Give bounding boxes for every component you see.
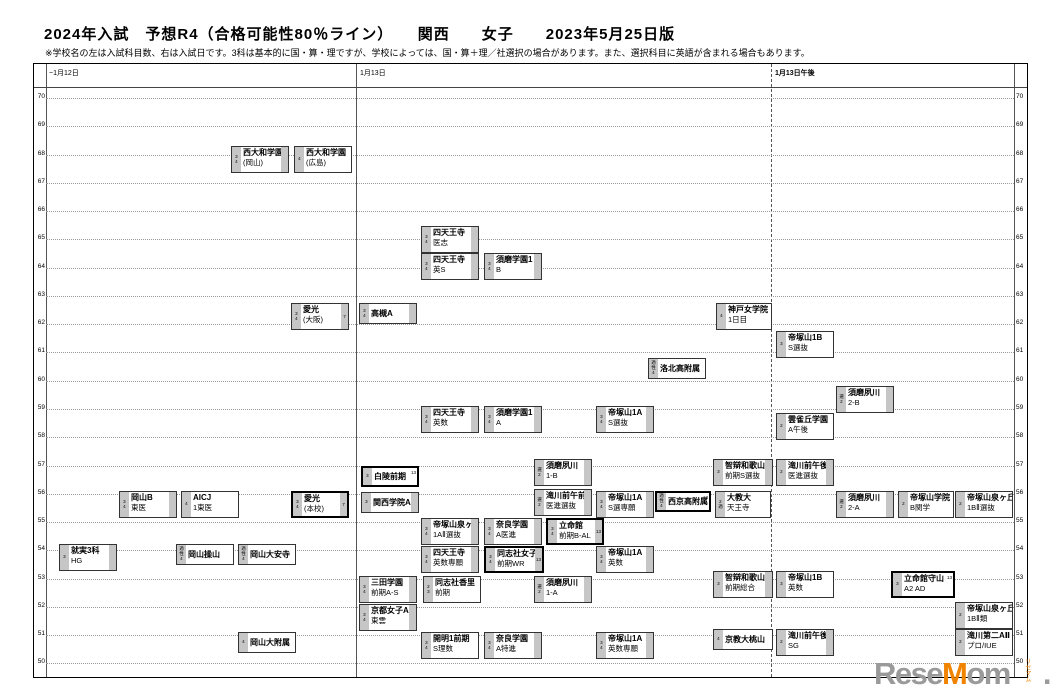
school-text: 白陵前期13 [372,468,417,485]
logo-katakana: リセマム [1011,658,1043,688]
column-header-jan13pm: 1月13日午後 [775,69,815,78]
school-text: 西大和学園(岡山) [241,147,281,172]
exam-day-band [886,387,893,412]
deviation-gridline [46,663,1014,664]
school-course: 1-A [546,588,584,597]
school-name: 四天王寺 [433,548,471,558]
school-box: 3智辯和歌山前期S選抜 [713,459,773,486]
column-header-jan13: 1月13日 [360,69,386,78]
school-text: 関西学院A [371,493,411,512]
school-text: 滝川第二AⅡプロ/IUE [965,630,1012,655]
axis-label-right: 62 [1016,319,1026,327]
school-text: 岡山B東医 [129,492,169,517]
axis-label-left: 56 [35,489,45,497]
school-box: 34開明1前期S理数 [421,632,479,659]
subjects-label: 34 [422,227,431,252]
deviation-gridline [46,239,1014,240]
school-text: AICJ1東医 [191,492,238,517]
subjects-label: 選2 [535,490,544,515]
school-box: 2滝川前午後医進選抜 [776,459,834,486]
column-divider-1 [356,64,357,677]
school-name: 智辯和歌山 [725,461,765,471]
resemom-logo: ReseMomリセマム. [874,658,1050,690]
axis-label-left: 68 [35,150,45,158]
school-name: 帝塚山1A [608,634,646,644]
deviation-gridline [46,437,1014,438]
school-text: 奈良学園A特進 [494,633,534,658]
school-box: 3就実3科HG [59,544,117,571]
school-text: 須磨夙川1-A [544,577,584,602]
school-text: 四天王寺英数 [431,407,471,432]
exam-day-band [534,633,541,658]
axis-label-right: 51 [1016,630,1026,638]
exam-day-band [646,407,653,432]
axis-label-right: 58 [1016,432,1026,440]
school-name: 帝塚山1A [608,408,646,418]
axis-label-left: 64 [35,263,45,271]
subjects-label: 3 [777,332,786,357]
school-text: 西京高附属13 [666,493,709,510]
subjects-label: 2 [956,603,965,628]
school-text: 帝塚山学院B関学 [908,492,953,517]
exam-day-band [471,407,478,432]
subjects-label: 34 [422,254,431,279]
school-name: 帝塚山1B [788,573,833,583]
axis-label-right: 70 [1016,93,1026,101]
exam-day-band [646,547,653,572]
school-course: 1BⅡ選抜 [967,503,1012,512]
subjects-label: 34 [485,633,494,658]
school-name: 関西学院A [373,498,411,508]
school-name: 智辯和歌山 [725,573,765,583]
school-box: 34帝塚山1A英数専願 [596,632,654,659]
school-box: 34帝塚山1A英数 [596,546,654,573]
school-box: 2帝塚山泉ヶ丘1BⅡ選抜 [955,491,1013,518]
deviation-gridline [46,98,1014,99]
subjects-label: 34 [422,407,431,432]
school-text: 帝塚山1BS選抜 [786,332,833,357]
school-course: 英数専願 [608,644,646,653]
school-name: 同志社香里 [435,578,480,588]
exam-day-band [646,633,653,658]
school-course: A午後 [788,425,833,434]
exam-day-band [584,490,591,515]
axis-label-left: 69 [35,121,45,129]
school-box: 34四天王寺医志 [421,226,479,253]
school-text: 四天王寺英S [431,254,471,279]
school-box: 34三田学園前期A-S [359,576,417,603]
school-text: 須磨夙川2-A [846,492,886,517]
school-text: 帝塚山1AS選抜 [606,407,646,432]
school-text: 智辯和歌山前期総合 [723,572,765,597]
school-box: 3関西学院A [361,492,419,513]
school-text: 同志社女子前期WR [495,548,535,571]
exam-day-band [409,577,416,602]
school-course: 英S [433,265,471,274]
axis-label-right: 65 [1016,234,1026,242]
school-box: 適性4洛北高附属 [648,358,706,379]
column-header-jan12: ~1月12日 [49,69,79,78]
school-course: 英数専願 [433,558,471,567]
school-text: 岡山大安寺 [248,545,295,564]
school-course: 英数 [608,558,646,567]
school-box: 34奈良学園A特進 [484,632,542,659]
axis-label-left: 53 [35,574,45,582]
subjects-label: 34 [120,492,129,517]
axis-label-left: 62 [35,319,45,327]
subjects-label: 3 [777,572,786,597]
school-box: 適性4岡山操山 [176,544,234,565]
axis-label-right: 52 [1016,602,1026,610]
school-text: 愛光(本校) [302,493,340,516]
subjects-label: 23 [424,577,433,602]
exam-day-band [584,577,591,602]
axis-label-left: 51 [35,630,45,638]
exam-day-band [646,492,653,517]
school-name: 開明1前期 [433,634,478,644]
exam-day-band: 7 [341,304,348,329]
school-name: 白陵前期 [374,472,406,482]
subjects-label: 34 [292,304,301,329]
school-course: 前期 [435,588,480,597]
school-name: 須磨夙川 [848,493,886,503]
school-box: 2滝川前午後SG [776,629,834,656]
axis-label-right: 60 [1016,376,1026,384]
subjects-label: 34 [485,519,494,544]
school-name: 奈良学園 [496,520,534,530]
school-course: 前期B-AL [559,531,595,540]
axis-label-left: 70 [35,93,45,101]
exam-day-band [409,605,416,630]
exam-day-band: 13 [595,520,602,543]
school-name: 帝塚山1A [608,548,646,558]
school-box: 34岡山B東医 [119,491,177,518]
school-box: 34立命館前期B-AL13 [546,518,604,545]
subjects-label: 34 [360,577,369,602]
axis-label-left: 63 [35,291,45,299]
axis-label-left: 58 [35,432,45,440]
school-course: 前期A-S [371,588,409,597]
school-name: 同志社女子 [497,549,535,559]
school-name: 岡山大附属 [250,638,290,648]
school-name: 立命館 [559,521,595,531]
school-name: 須磨夙川 [848,388,886,398]
school-box: 3帝塚山1BS選抜 [776,331,834,358]
school-course: 天王寺 [727,503,770,512]
subjects-label: 3 [714,460,723,485]
axis-label-left: 57 [35,461,45,469]
school-box: 34須磨学園1A [484,406,542,433]
school-name: 滝川前午前 [546,491,584,501]
school-box: 3立命館守山A2 AD13 [891,571,955,598]
logo-accent-letter: M [942,656,966,691]
school-course: A2 AD [904,584,953,593]
school-text: 立命館守山A2 AD13 [902,573,953,596]
exam-day-band [471,519,478,544]
school-name: 奈良学園 [496,634,534,644]
axis-label-right: 53 [1016,574,1026,582]
school-box: 適性4岡山大安寺 [238,544,296,565]
school-box: 34帝塚山1AS選専願 [596,491,654,518]
subjects-label: 34 [422,519,431,544]
subjects-label: 4 [295,147,304,172]
exam-day-band [409,304,416,323]
subjects-label: 選2 [535,460,544,485]
logo-text-2: om [966,656,1010,691]
school-course: 1AⅡ選抜 [433,530,471,539]
school-name: 帝塚山学院 [910,493,953,503]
subjects-label: 2 [899,492,908,517]
subjects-label: 34 [597,547,606,572]
school-name: 岡山B [131,493,169,503]
school-text: 洛北高附属 [658,359,705,378]
school-text: 京教大桃山 [723,630,772,649]
deviation-gridline [46,607,1014,608]
school-box: 4西大和学園(広島) [294,146,352,173]
subjects-label: 選2 [535,577,544,602]
school-box: 3帝塚山1B英数 [776,571,834,598]
school-text: 帝塚山泉ヶ丘1AⅡ選抜 [431,519,471,544]
school-box: 34高槻A [359,303,417,324]
school-course: SG [788,641,826,650]
exam-day-band: 13 [535,548,542,571]
subjects-label: 4 [714,630,723,649]
school-course: HG [71,556,109,565]
logo-text: Rese [874,656,942,691]
school-text: 神戸女学院1日目 [726,304,771,329]
school-course: 東医 [131,503,169,512]
school-box: 34四天王寺英S [421,253,479,280]
deviation-gridline [46,296,1014,297]
exam-day-band [826,630,833,655]
right-axis-border [1014,64,1015,677]
school-course: 医進選抜 [788,471,826,480]
axis-label-left: 66 [35,206,45,214]
subjects-label: 2適 [716,492,725,517]
school-name: 須磨学園1 [496,408,534,418]
subjects-label: 2 [777,630,786,655]
school-box: 選2須磨夙川2-A [836,491,894,518]
school-box: 34西大和学園(岡山) [231,146,289,173]
exam-day-band [826,460,833,485]
school-text: 須磨学園1A [494,407,534,432]
school-name: 須磨夙川 [546,578,584,588]
subjects-label: 2 [956,630,965,655]
exam-day-band [765,572,772,597]
subjects-label: 選2 [837,387,846,412]
exam-day-band [471,254,478,279]
school-text: 帝塚山1A英数 [606,547,646,572]
school-text: 岡山大附属 [248,633,295,652]
axis-label-left: 59 [35,404,45,412]
school-box: 3智辯和歌山前期総合 [713,571,773,598]
school-text: 雲雀丘学園A午後 [786,414,833,439]
school-box: 2滝川第二AⅡプロ/IUE [955,629,1013,656]
school-course: (岡山) [243,158,281,167]
school-text: 開明1前期S理数 [431,633,478,658]
school-name: 神戸女学院 [728,305,771,315]
deviation-gridline [46,211,1014,212]
school-course: S理数 [433,644,478,653]
school-course: A [496,418,534,427]
subjects-label: 4 [239,633,248,652]
axis-label-right: 67 [1016,178,1026,186]
school-box: 34須磨学園1B [484,253,542,280]
axis-label-right: 55 [1016,517,1026,525]
subjects-label: 選2 [837,492,846,517]
school-box: 3白陵前期13 [361,466,419,487]
school-name: 立命館守山 [904,574,953,584]
axis-label-left: 65 [35,234,45,242]
subjects-label: 34 [293,493,302,516]
school-course: 前期総合 [725,583,765,592]
logo-dot: . [1043,656,1050,691]
school-box: 4京教大桃山 [713,629,773,650]
school-name: 三田学園 [371,578,409,588]
school-box: 34帝塚山泉ヶ丘1AⅡ選抜 [421,518,479,545]
school-name: 岡山大安寺 [250,550,290,560]
deviation-gridline [46,155,1014,156]
school-text: 西大和学園(広島) [304,147,351,172]
deviation-gridline [46,352,1014,353]
school-name: 四天王寺 [433,228,471,238]
school-text: 大教大天王寺 [725,492,770,517]
subjects-label: 2 [777,414,786,439]
subjects-label: 適性4 [649,359,658,378]
exam-day-label: 13 [411,470,416,475]
school-course: (本校) [304,504,340,513]
school-box: 2適大教大天王寺 [715,491,771,518]
school-name: 須磨夙川 [546,461,584,471]
axis-label-left: 52 [35,602,45,610]
subjects-label: 34 [485,254,494,279]
school-box: 4岡山大附属 [238,632,296,653]
exam-day-band [534,254,541,279]
school-text: 須磨夙川1-B [544,460,584,485]
school-text: 京都女子A東雲 [369,605,409,630]
school-name: AICJ [193,493,238,503]
school-name: 帝塚山泉ヶ丘 [433,520,471,530]
subjects-label: 34 [422,633,431,658]
subjects-label: 適性4 [239,545,248,564]
school-course: 1BⅡ類 [967,614,1012,623]
exam-day-label: 13 [703,495,708,500]
school-name: 帝塚山1A [608,493,646,503]
school-text: 須磨学園1B [494,254,534,279]
axis-label-right: 57 [1016,461,1026,469]
school-box: 34四天王寺英数専願 [421,546,479,573]
school-course: B [496,265,534,274]
school-box: 選2須磨夙川1-B [534,459,592,486]
school-text: 帝塚山泉ヶ丘1BⅡ類 [965,603,1012,628]
axis-label-left: 67 [35,178,45,186]
school-text: 立命館前期B-AL [557,520,595,543]
axis-label-left: 54 [35,545,45,553]
axis-label-right: 64 [1016,263,1026,271]
school-course: 医志 [433,238,471,247]
school-text: 滝川前午前医進選抜 [544,490,584,515]
school-course: 東雲 [371,616,409,625]
exam-day-band [765,460,772,485]
subjects-label: 2 [956,492,965,517]
axis-label-right: 61 [1016,347,1026,355]
axis-label-left: 61 [35,347,45,355]
school-text: 帝塚山1AS選専願 [606,492,646,517]
school-name: 大教大 [727,493,770,503]
exam-day-band [411,493,418,512]
subjects-label: 34 [597,492,606,517]
axis-label-right: 54 [1016,545,1026,553]
school-name: 就実3科 [71,546,109,556]
school-text: 岡山操山 [186,545,233,564]
school-course: 1日目 [728,315,771,324]
deviation-gridline [46,324,1014,325]
school-course: 1-B [546,471,584,480]
school-text: 奈良学園A医進 [494,519,534,544]
school-box: 23同志社香里前期 [423,576,481,603]
school-name: 須磨学園1 [496,255,534,265]
school-name: 高槻A [371,309,393,319]
school-text: 帝塚山1A英数専願 [606,633,646,658]
axis-label-right: 66 [1016,206,1026,214]
axis-label-right: 68 [1016,150,1026,158]
school-box: 選2須磨夙川1-A [534,576,592,603]
deviation-gridline [46,183,1014,184]
deviation-gridline [46,579,1014,580]
subjects-label: 適性4 [177,545,186,564]
school-text: 同志社香里前期 [433,577,480,602]
school-text: 四天王寺医志 [431,227,471,252]
school-course: S選抜 [788,343,833,352]
school-text: 三田学園前期A-S [369,577,409,602]
subjects-label: 4 [717,304,726,329]
school-course: B関学 [910,503,953,512]
school-box: 選2須磨夙川2-B [836,386,894,413]
axis-label-left: 55 [35,517,45,525]
school-name: 滝川前午後 [788,631,826,641]
school-course: 2-A [848,503,886,512]
school-name: 愛光 [303,305,341,315]
axis-label-right: 69 [1016,121,1026,129]
school-name: 滝川第二AⅡ [967,631,1012,641]
subjects-label: 3 [362,493,371,512]
axis-label-right: 63 [1016,291,1026,299]
subjects-label: 34 [360,605,369,630]
school-box: 34四天王寺英数 [421,406,479,433]
subjects-label: 2 [777,460,786,485]
subjects-label: 34 [597,633,606,658]
school-name: 西大和学園 [306,148,351,158]
subjects-label: 4 [182,492,191,517]
school-text: 愛光(大阪) [301,304,341,329]
school-name: 帝塚山泉ヶ丘 [967,493,1012,503]
school-name: 帝塚山1B [788,333,833,343]
subjects-label: 34 [422,547,431,572]
school-course: S選抜 [608,418,646,427]
subjects-label: 3 [363,468,372,485]
school-name: 西大和学園 [243,148,281,158]
school-course: 医進選抜 [546,501,584,510]
axis-label-left: 50 [35,658,45,666]
school-text: 帝塚山1B英数 [786,572,833,597]
subjects-label: 34 [232,147,241,172]
school-course: プロ/IUE [967,641,1012,650]
school-box: 適性4西京高附属13 [655,491,711,512]
school-box: 2帝塚山泉ヶ丘1BⅡ類 [955,602,1013,629]
school-course: (大阪) [303,315,341,324]
school-name: 愛光 [304,494,340,504]
school-course: 前期S選抜 [725,471,765,480]
